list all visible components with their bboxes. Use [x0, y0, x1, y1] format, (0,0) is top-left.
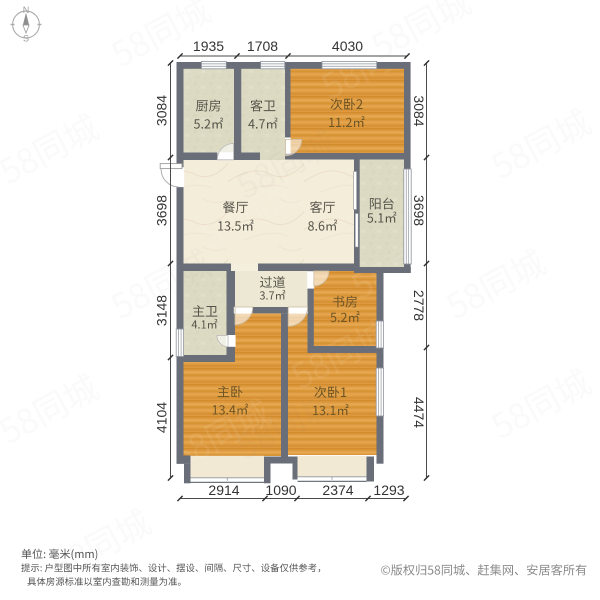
svg-text:1293: 1293 — [373, 482, 404, 498]
svg-text:N: N — [23, 5, 30, 15]
svg-text:3698: 3698 — [411, 195, 427, 226]
svg-text:2374: 2374 — [322, 482, 353, 498]
svg-text:2914: 2914 — [208, 482, 239, 498]
svg-text:1935: 1935 — [193, 38, 224, 54]
svg-text:3148: 3148 — [154, 295, 170, 326]
svg-text:2778: 2778 — [411, 290, 427, 321]
svg-text:4030: 4030 — [332, 38, 363, 54]
svg-text:3698: 3698 — [154, 195, 170, 226]
svg-text:S: S — [23, 34, 29, 44]
svg-text:1708: 1708 — [247, 38, 278, 54]
svg-text:3084: 3084 — [411, 95, 427, 126]
svg-text:4474: 4474 — [411, 397, 427, 428]
svg-text:1090: 1090 — [265, 482, 296, 498]
svg-text:3084: 3084 — [154, 95, 170, 126]
svg-text:4104: 4104 — [154, 402, 170, 433]
